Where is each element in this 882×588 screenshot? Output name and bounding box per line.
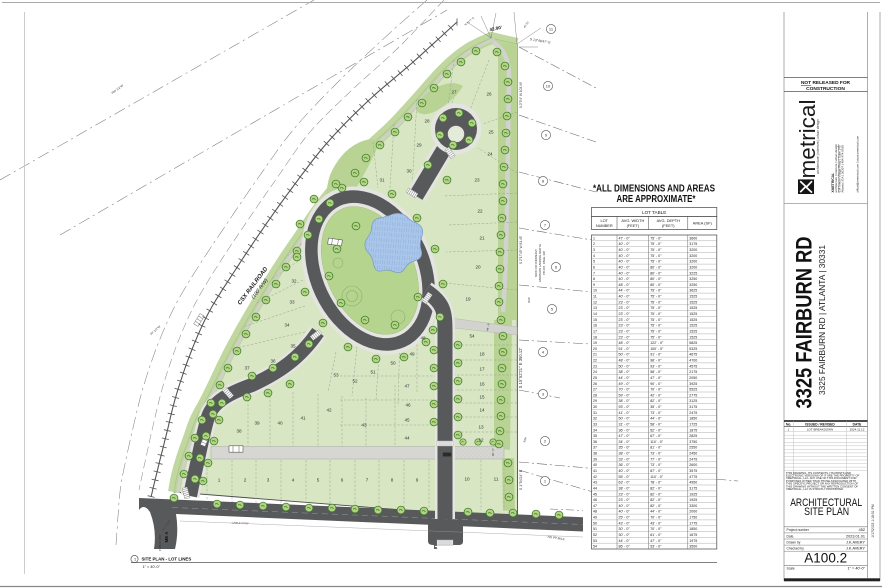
svg-text:17: 17	[593, 329, 597, 333]
svg-text:(FEET): (FEET)	[662, 223, 675, 228]
svg-text:82' - 0": 82' - 0"	[650, 492, 662, 496]
svg-text:49' - 0": 49' - 0"	[619, 382, 631, 386]
svg-text:40' - 0": 40' - 0"	[619, 277, 631, 281]
svg-text:Checked by: Checked by	[787, 547, 805, 551]
svg-text:DATE: DATE	[853, 422, 863, 426]
svg-text:87' - 0": 87' - 0"	[650, 469, 662, 473]
svg-text:47' - 0": 47' - 0"	[619, 236, 631, 240]
svg-text:(FEET): (FEET)	[627, 223, 640, 228]
svg-text:42' - 0": 42' - 0"	[650, 393, 662, 397]
svg-text:100' - 0": 100' - 0"	[650, 347, 664, 351]
svg-text:2450: 2450	[689, 452, 697, 456]
svg-text:3: 3	[593, 248, 595, 252]
svg-text:30: 30	[406, 169, 412, 174]
svg-text:42: 42	[326, 408, 332, 413]
svg-text:1525: 1525	[689, 324, 697, 328]
svg-text:23' - 0": 23' - 0"	[619, 329, 631, 333]
svg-text:S 1°54'24" E: S 1°54'24" E	[519, 469, 523, 490]
svg-text:1: 1	[218, 478, 221, 483]
svg-text:26: 26	[486, 92, 492, 97]
svg-text:48: 48	[593, 510, 597, 514]
svg-text:93' - 0": 93' - 0"	[650, 364, 662, 368]
svg-text:ISSUED / REVISED: ISSUED / REVISED	[805, 422, 835, 426]
svg-text:30' - 0": 30' - 0"	[619, 533, 631, 537]
svg-text:8: 8	[391, 478, 394, 483]
svg-text:3175: 3175	[689, 242, 697, 246]
svg-text:55' - 0": 55' - 0"	[619, 475, 631, 479]
svg-text:1675: 1675	[689, 533, 697, 537]
svg-text:2: 2	[593, 242, 595, 246]
svg-text:53: 53	[593, 539, 597, 543]
svg-text:73' - 0": 73' - 0"	[650, 411, 662, 415]
svg-text:36: 36	[593, 440, 597, 444]
svg-text:2550: 2550	[689, 446, 697, 450]
svg-text:22: 22	[477, 209, 483, 214]
svg-text:1850: 1850	[689, 417, 697, 421]
svg-text:3500: 3500	[689, 545, 697, 549]
svg-text:28: 28	[593, 393, 597, 397]
svg-text:75' - 0": 75' - 0"	[650, 289, 662, 293]
svg-text:38' - 0": 38' - 0"	[619, 370, 631, 374]
svg-text:13: 13	[593, 306, 597, 310]
svg-text:44' - 0": 44' - 0"	[619, 289, 631, 293]
svg-text:1725: 1725	[689, 423, 697, 427]
svg-text:49: 49	[593, 516, 597, 520]
svg-text:50: 50	[593, 521, 597, 525]
svg-text:35' - 0": 35' - 0"	[619, 446, 631, 450]
svg-text:46: 46	[593, 498, 597, 502]
svg-text:1975: 1975	[689, 539, 697, 543]
svg-text:1/17/2023 1:18:51 PM: 1/17/2023 1:18:51 PM	[871, 504, 875, 538]
svg-text:7: 7	[593, 271, 595, 275]
svg-text:45: 45	[593, 492, 597, 496]
svg-text:61' - 0": 61' - 0"	[650, 533, 662, 537]
svg-text:4: 4	[593, 254, 595, 258]
svg-text:NOT RELEASED FOR: NOT RELEASED FOR	[801, 80, 851, 86]
svg-text:26: 26	[593, 382, 597, 386]
svg-text:41: 41	[593, 469, 597, 473]
svg-text:34: 34	[284, 323, 290, 328]
svg-text:75' - 0": 75' - 0"	[650, 329, 662, 333]
svg-text:J.K.AVERY: J.K.AVERY	[846, 547, 866, 551]
svg-text:80' - 0": 80' - 0"	[650, 271, 662, 275]
svg-text:36' - 0": 36' - 0"	[619, 428, 631, 432]
svg-text:1: 1	[134, 558, 136, 562]
svg-text:1525: 1525	[689, 295, 697, 299]
svg-text:A100.2: A100.2	[804, 551, 847, 566]
svg-text:CONSTRUCTION: CONSTRUCTION	[806, 86, 845, 92]
svg-text:50' - 0": 50' - 0"	[619, 353, 631, 357]
svg-text:2475: 2475	[689, 411, 697, 415]
svg-text:44' - 0": 44' - 0"	[619, 376, 631, 380]
svg-text:2475: 2475	[689, 457, 697, 461]
svg-text:No.: No.	[786, 422, 791, 426]
svg-text:59' - 0": 59' - 0"	[619, 393, 631, 397]
svg-text:39: 39	[593, 457, 597, 461]
svg-text:23' - 0": 23' - 0"	[619, 498, 631, 502]
svg-text:53: 53	[333, 373, 339, 378]
svg-text:40' - 0": 40' - 0"	[619, 242, 631, 246]
svg-text:3125: 3125	[689, 399, 697, 403]
svg-text:44' - 0": 44' - 0"	[619, 539, 631, 543]
svg-text:R/W: R/W	[527, 297, 531, 303]
svg-text:34: 34	[593, 428, 597, 432]
svg-text:24: 24	[593, 370, 597, 374]
svg-text:44: 44	[404, 436, 410, 441]
svg-text:S 0°5'4" W 103.99': S 0°5'4" W 103.99'	[519, 81, 523, 108]
svg-text:93' - 0": 93' - 0"	[619, 405, 631, 409]
svg-text:9: 9	[416, 478, 419, 483]
svg-text:1525: 1525	[689, 312, 697, 316]
svg-text:40' - 0": 40' - 0"	[619, 510, 631, 514]
svg-text:40' - 0": 40' - 0"	[619, 469, 631, 473]
svg-text:80' - 0": 80' - 0"	[650, 277, 662, 281]
svg-text:81' - 0": 81' - 0"	[650, 446, 662, 450]
svg-text:Date: Date	[787, 534, 794, 538]
svg-text:44' - 0": 44' - 0"	[650, 417, 662, 421]
svg-text:48' - 0": 48' - 0"	[619, 283, 631, 287]
svg-text:3250: 3250	[689, 283, 697, 287]
svg-text:16: 16	[479, 382, 485, 387]
svg-text:30' - 0": 30' - 0"	[619, 527, 631, 531]
svg-text:40' - 0": 40' - 0"	[619, 248, 631, 252]
svg-text:20: 20	[593, 347, 597, 351]
svg-text:office@xmetrical.com | www.xme: office@xmetrical.com | www.xmetrical.com	[856, 135, 860, 192]
svg-text:82' - 0": 82' - 0"	[650, 486, 662, 490]
svg-text:31: 31	[379, 178, 385, 183]
svg-text:34' - 0": 34' - 0"	[619, 440, 631, 444]
svg-text:23: 23	[474, 178, 480, 183]
svg-text:23' - 0": 23' - 0"	[619, 492, 631, 496]
svg-text:58' - 0": 58' - 0"	[650, 370, 662, 374]
svg-text:Atlanta | GA | 30307 | 404.474: Atlanta | GA | 30307 | 404.474.0018	[840, 145, 844, 193]
svg-text:80' - 0": 80' - 0"	[650, 266, 662, 270]
svg-text:11: 11	[494, 477, 499, 482]
svg-text:43: 43	[361, 423, 367, 428]
svg-text:41: 41	[300, 416, 306, 421]
svg-text:1925: 1925	[689, 492, 697, 496]
svg-text:73' - 0": 73' - 0"	[650, 463, 662, 467]
svg-text:50' - 0": 50' - 0"	[619, 364, 631, 368]
svg-text:4575: 4575	[689, 364, 697, 368]
svg-text:31' - 0": 31' - 0"	[619, 423, 631, 427]
svg-text:23' - 0": 23' - 0"	[619, 318, 631, 322]
svg-text:43' - 0": 43' - 0"	[619, 521, 631, 525]
svg-text:24: 24	[487, 152, 493, 157]
svg-text:75' - 0": 75' - 0"	[650, 335, 662, 339]
svg-text:75' - 0": 75' - 0"	[650, 312, 662, 316]
svg-text:50: 50	[390, 361, 396, 366]
svg-text:38' - 0": 38' - 0"	[619, 452, 631, 456]
svg-text:1: 1	[593, 236, 595, 240]
svg-text:40' - 0": 40' - 0"	[619, 295, 631, 299]
svg-text:1525: 1525	[689, 335, 697, 339]
svg-text:47: 47	[593, 504, 597, 508]
svg-text:33' - 0": 33' - 0"	[619, 457, 631, 461]
svg-text:32: 32	[291, 279, 297, 284]
svg-text:4775: 4775	[689, 475, 697, 479]
svg-text:47' - 0": 47' - 0"	[650, 376, 662, 380]
svg-text:49: 49	[409, 352, 415, 357]
svg-text:452: 452	[859, 528, 865, 532]
svg-text:52: 52	[593, 533, 597, 537]
svg-text:6: 6	[341, 478, 344, 483]
svg-text:44' - 0": 44' - 0"	[650, 510, 662, 514]
svg-text:86' - 0": 86' - 0"	[619, 545, 631, 549]
svg-text:54: 54	[469, 334, 475, 339]
svg-text:75' - 0": 75' - 0"	[650, 248, 662, 252]
svg-text:110' - 0": 110' - 0"	[650, 440, 664, 444]
svg-text:43' - 0": 43' - 0"	[650, 521, 662, 525]
svg-text:54: 54	[593, 545, 597, 549]
svg-text:82' - 0": 82' - 0"	[650, 498, 662, 502]
svg-text:3250: 3250	[689, 277, 697, 281]
svg-text:38: 38	[593, 452, 597, 456]
svg-text:10: 10	[464, 477, 470, 482]
svg-text:25: 25	[488, 130, 494, 135]
svg-text:25: 25	[593, 376, 597, 380]
svg-text:38: 38	[236, 429, 242, 434]
svg-text:48' - 0": 48' - 0"	[619, 341, 631, 345]
svg-text:1" = 40'-0": 1" = 40'-0"	[143, 565, 161, 569]
svg-text:70' - 0": 70' - 0"	[619, 388, 631, 392]
svg-text:21: 21	[593, 353, 597, 357]
svg-text:5825: 5825	[689, 341, 697, 345]
svg-text:23' - 0": 23' - 0"	[619, 300, 631, 304]
svg-text:49' - 0": 49' - 0"	[491, 448, 495, 456]
svg-text:75' - 0": 75' - 0"	[650, 300, 662, 304]
svg-text:11: 11	[593, 295, 597, 299]
svg-text:82' - 0": 82' - 0"	[650, 399, 662, 403]
svg-text:18: 18	[479, 352, 485, 357]
svg-text:S 2°17'45" W 81.45': S 2°17'45" W 81.45'	[519, 235, 523, 264]
svg-text:NUMBER: NUMBER	[596, 223, 613, 228]
svg-text:47: 47	[404, 384, 410, 389]
svg-text:20: 20	[475, 265, 481, 270]
svg-text:SITE PLAN: SITE PLAN	[804, 506, 849, 518]
svg-text:73' - 0": 73' - 0"	[650, 452, 662, 456]
svg-text:23: 23	[593, 364, 597, 368]
svg-text:37: 37	[593, 446, 597, 450]
svg-text:33: 33	[289, 300, 295, 305]
svg-text:2825: 2825	[689, 434, 697, 438]
svg-text:10: 10	[593, 289, 597, 293]
svg-text:ARE APPROXIMATE*: ARE APPROXIMATE*	[617, 193, 697, 205]
svg-text:18: 18	[593, 335, 597, 339]
svg-text:XMETRICAL, LLC IS STRICTLY PR: XMETRICAL, LLC IS STRICTLY PROHIBITED.	[786, 487, 844, 491]
svg-text:52: 52	[352, 379, 358, 384]
svg-text:5525: 5525	[689, 388, 697, 392]
svg-text:75' - 0": 75' - 0"	[650, 254, 662, 258]
svg-text:75' - 0": 75' - 0"	[650, 318, 662, 322]
svg-text:16: 16	[593, 324, 597, 328]
svg-text:23' - 0": 23' - 0"	[619, 312, 631, 316]
svg-text:46: 46	[405, 403, 411, 408]
svg-text:3: 3	[267, 478, 270, 483]
svg-text:75' - 0": 75' - 0"	[650, 295, 662, 299]
svg-text:4: 4	[292, 478, 295, 483]
svg-text:23' - 0": 23' - 0"	[619, 324, 631, 328]
svg-text:40' - 0": 40' - 0"	[619, 254, 631, 258]
svg-text:9: 9	[593, 283, 595, 287]
svg-text:36: 36	[270, 359, 276, 364]
svg-text:75' - 0": 75' - 0"	[650, 306, 662, 310]
svg-text:19: 19	[593, 341, 597, 345]
svg-text:45: 45	[404, 418, 410, 423]
svg-text:3200: 3200	[689, 248, 697, 252]
svg-text:3600: 3600	[689, 236, 697, 240]
svg-text:SITE PLAN - LOT LINES: SITE PLAN - LOT LINES	[142, 557, 192, 562]
svg-text:70' - 0": 70' - 0"	[650, 388, 662, 392]
svg-text:40: 40	[277, 421, 283, 426]
svg-text:37: 37	[244, 366, 250, 371]
svg-text:12: 12	[478, 438, 484, 443]
svg-text:51: 51	[593, 527, 597, 531]
svg-text:1525: 1525	[689, 300, 697, 304]
svg-text:32: 32	[593, 417, 597, 421]
svg-text:48: 48	[420, 336, 426, 341]
svg-text:77' - 0": 77' - 0"	[650, 457, 662, 461]
svg-text:40' - 0": 40' - 0"	[619, 260, 631, 264]
svg-text:51' - 0": 51' - 0"	[619, 347, 631, 351]
svg-text:17: 17	[479, 367, 485, 372]
svg-text:7: 7	[366, 478, 369, 483]
svg-text:40' - 0": 40' - 0"	[619, 266, 631, 270]
svg-text:5325: 5325	[689, 347, 697, 351]
svg-text:AREA (SF): AREA (SF)	[693, 221, 713, 226]
svg-text:80' - 0": 80' - 0"	[650, 283, 662, 287]
svg-text:47' - 0": 47' - 0"	[650, 539, 662, 543]
svg-text:25' - 0": 25' - 0"	[619, 516, 631, 520]
svg-text:29: 29	[416, 143, 422, 148]
svg-text:Project number: Project number	[787, 528, 810, 532]
svg-text:15: 15	[593, 318, 597, 322]
svg-text:30: 30	[593, 405, 597, 409]
svg-text:29: 29	[593, 399, 597, 403]
svg-text:2175: 2175	[689, 370, 697, 374]
svg-text:122' - 0": 122' - 0"	[650, 341, 664, 345]
svg-text:6: 6	[593, 266, 595, 270]
svg-text:2024.11.12: 2024.11.12	[850, 427, 865, 431]
svg-text:67' - 0": 67' - 0"	[650, 434, 662, 438]
svg-text:2775: 2775	[689, 393, 697, 397]
svg-text:75' - 0": 75' - 0"	[650, 236, 662, 240]
svg-text:58' - 0": 58' - 0"	[650, 423, 662, 427]
svg-text:3200: 3200	[689, 254, 697, 258]
svg-text:4675: 4675	[689, 353, 697, 357]
svg-text:39: 39	[254, 421, 260, 426]
svg-text:4700: 4700	[689, 359, 697, 363]
svg-text:40' - 0": 40' - 0"	[619, 504, 631, 508]
svg-text:22: 22	[593, 359, 597, 363]
svg-text:36' - 0": 36' - 0"	[619, 463, 631, 467]
svg-text:2: 2	[244, 478, 247, 483]
svg-text:3325 FAIRBURN RD: 3325 FAIRBURN RD	[792, 237, 817, 409]
svg-text:110' - 0": 110' - 0"	[650, 475, 664, 479]
svg-text:3300: 3300	[689, 504, 697, 508]
svg-text:3625: 3625	[689, 289, 697, 293]
svg-text:15: 15	[479, 395, 485, 400]
svg-text:70' - 0": 70' - 0"	[650, 516, 662, 520]
svg-text:S 15°52'21" E 350.12': S 15°52'21" E 350.12'	[518, 347, 523, 388]
svg-text:43: 43	[593, 481, 597, 485]
svg-text:14: 14	[479, 408, 485, 413]
svg-text:63' - 0": 63' - 0"	[619, 481, 631, 485]
svg-text:48' - 0": 48' - 0"	[619, 359, 631, 363]
svg-text:28: 28	[424, 119, 430, 124]
svg-text:35' - 0": 35' - 0"	[650, 405, 662, 409]
svg-text:51: 51	[370, 370, 376, 375]
svg-text:4950: 4950	[689, 481, 697, 485]
svg-text:40: 40	[593, 463, 597, 467]
svg-text:LOT BREAKDOWN: LOT BREAKDOWN	[807, 427, 833, 431]
svg-text:3225: 3225	[689, 271, 697, 275]
svg-text:12: 12	[593, 300, 597, 304]
svg-text:2600: 2600	[689, 463, 697, 467]
svg-text:3750: 3750	[689, 440, 697, 444]
svg-text:1525: 1525	[689, 329, 697, 333]
svg-text:3325 FAIRBURN RD | ATLANTA |: 3325 FAIRBURN RD | ATLANTA | 30331	[818, 245, 827, 395]
svg-text:98' - 0": 98' - 0"	[650, 359, 662, 363]
svg-text:75' - 0": 75' - 0"	[650, 324, 662, 328]
svg-text:78' - 0": 78' - 0"	[650, 481, 662, 485]
svg-text:3575: 3575	[689, 469, 697, 473]
svg-text:38' - 0": 38' - 0"	[619, 399, 631, 403]
svg-text:8: 8	[593, 277, 595, 281]
svg-text:70' - 0": 70' - 0"	[650, 527, 662, 531]
svg-text:31: 31	[593, 411, 597, 415]
svg-text:52' - 0": 52' - 0"	[650, 428, 662, 432]
svg-text:50' - 0": 50' - 0"	[619, 417, 631, 421]
svg-text:41' - 0": 41' - 0"	[619, 411, 631, 415]
svg-text:3175: 3175	[689, 486, 697, 490]
svg-text:2050: 2050	[689, 376, 697, 380]
svg-text:1925: 1925	[689, 498, 697, 502]
svg-text:19: 19	[465, 297, 471, 302]
svg-text:91' - 0": 91' - 0"	[650, 353, 662, 357]
svg-text:14: 14	[593, 312, 597, 316]
svg-text:1525: 1525	[689, 318, 697, 322]
svg-text:23' - 0": 23' - 0"	[619, 306, 631, 310]
svg-text:LOT TABLE: LOT TABLE	[642, 210, 666, 215]
svg-text:33: 33	[593, 423, 597, 427]
svg-text:1" = 40'-0": 1" = 40'-0"	[848, 567, 866, 571]
svg-text:J.K.AVERY: J.K.AVERY	[846, 540, 866, 544]
svg-text:1525: 1525	[689, 306, 697, 310]
svg-text:90' - 0": 90' - 0"	[650, 382, 662, 386]
svg-text:3175: 3175	[689, 405, 697, 409]
svg-text:53' - 0": 53' - 0"	[650, 545, 662, 549]
svg-text:10: 10	[546, 84, 551, 89]
svg-text:3200: 3200	[689, 266, 697, 270]
svg-text:75' - 0": 75' - 0"	[650, 260, 662, 264]
svg-text:1775: 1775	[689, 521, 697, 525]
svg-text:40' - 0": 40' - 0"	[619, 271, 631, 275]
svg-text:ME A: ME A	[164, 531, 169, 543]
svg-text:27: 27	[451, 90, 457, 95]
svg-text:1850: 1850	[689, 527, 697, 531]
svg-text:2023.01.01: 2023.01.01	[846, 534, 865, 538]
svg-text:Scale: Scale	[787, 567, 795, 571]
svg-text:27: 27	[593, 388, 597, 392]
svg-text:3925: 3925	[689, 382, 697, 386]
svg-text:13: 13	[478, 425, 484, 430]
svg-text:5: 5	[593, 260, 595, 264]
svg-text:44: 44	[593, 486, 597, 490]
svg-text:47' - 0": 47' - 0"	[619, 434, 631, 438]
svg-text:38' - 0": 38' - 0"	[619, 486, 631, 490]
svg-text:PUBLIC R/W: PUBLIC R/W	[158, 534, 162, 551]
